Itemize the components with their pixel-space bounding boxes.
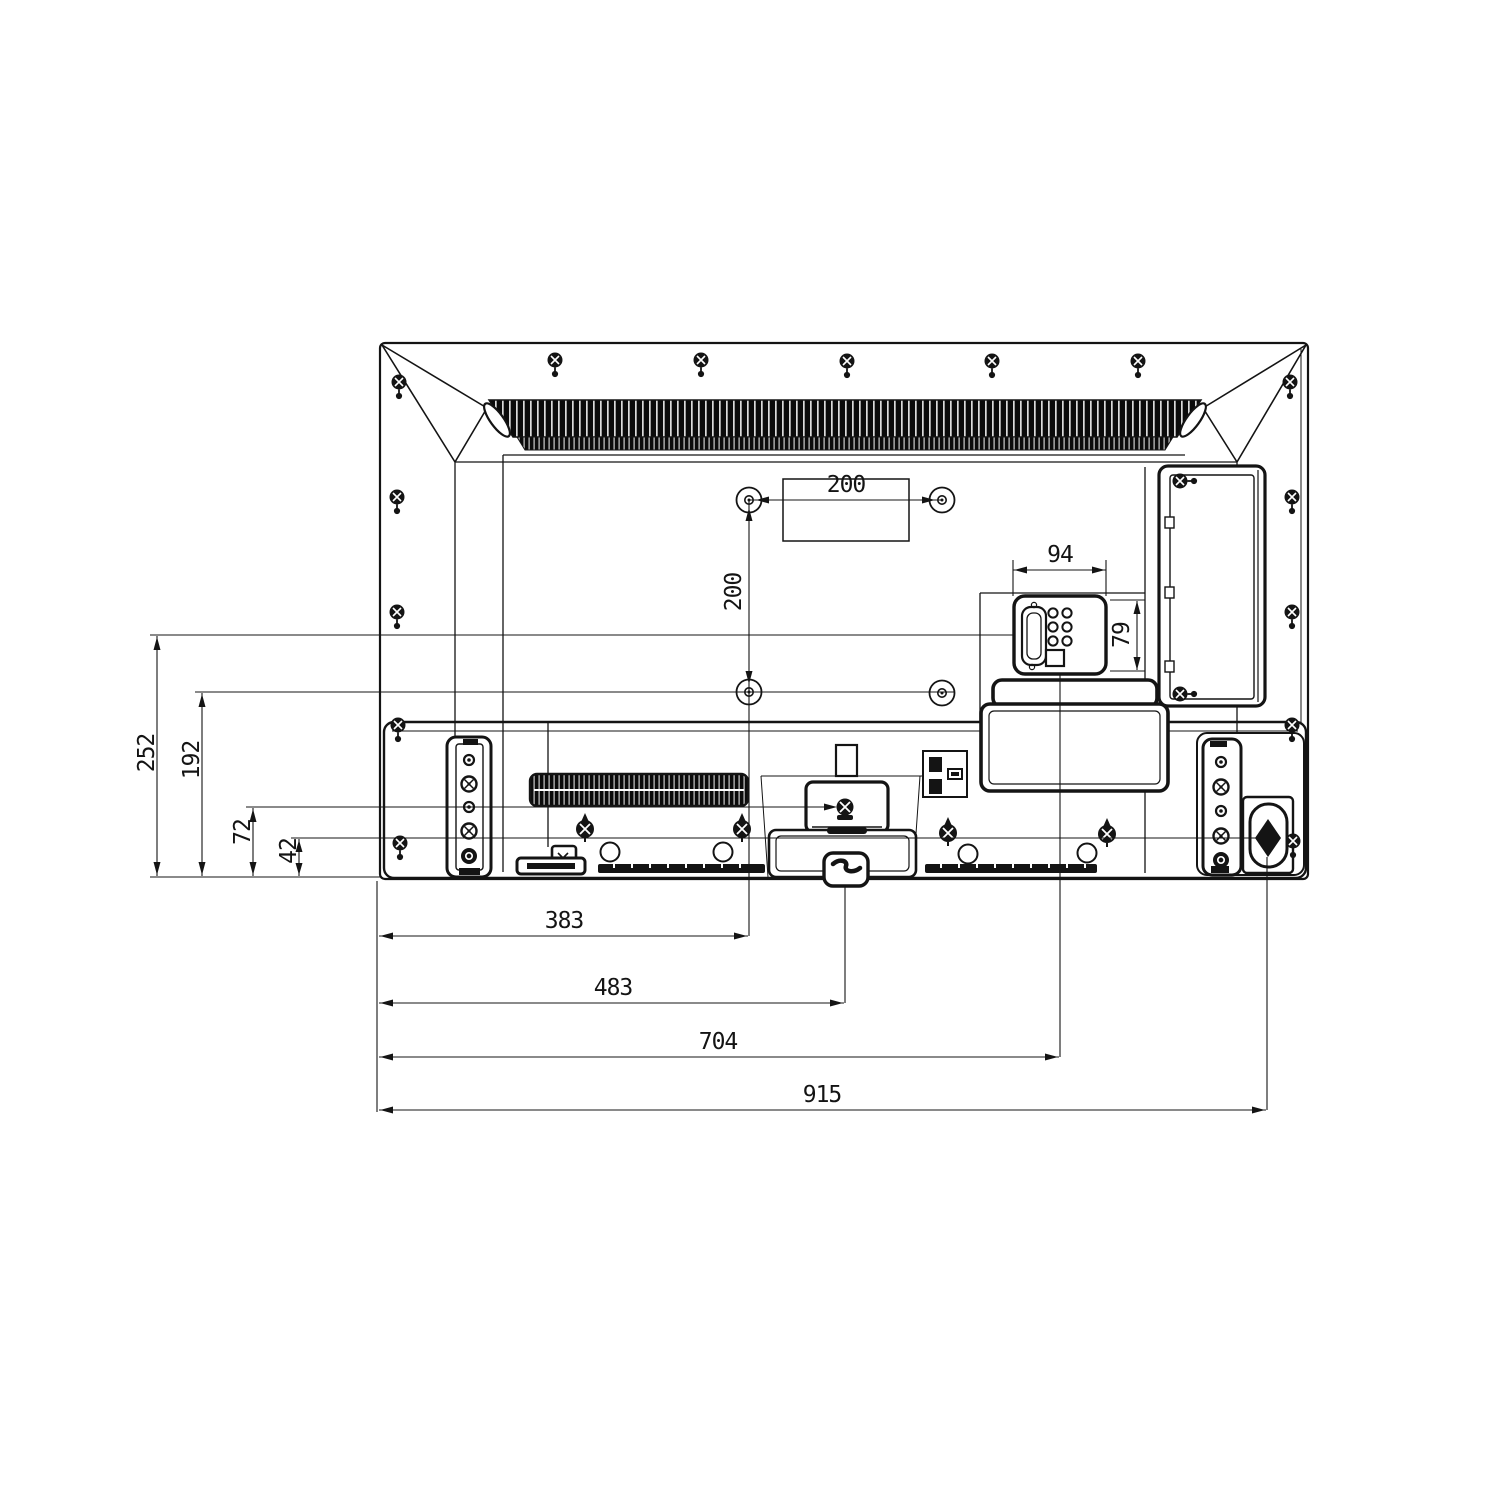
usb-panel xyxy=(923,751,967,797)
drawing-sheet: 200 200 94 79 252 192 72 42 383 483 704 … xyxy=(0,0,1500,1500)
dim-label-192: 192 xyxy=(179,741,205,780)
av-jack-icon xyxy=(461,848,477,864)
tv-rear-diagram: 200 200 94 79 252 192 72 42 383 483 704 … xyxy=(0,0,1500,1500)
dim-label-383: 383 xyxy=(545,908,584,934)
dim-label-72: 72 xyxy=(230,819,256,845)
power-inlet xyxy=(1243,797,1293,873)
av-jack-icon xyxy=(1214,829,1229,844)
dim-label-42: 42 xyxy=(276,838,302,864)
dim-label-252: 252 xyxy=(134,734,160,773)
dim-label-94: 94 xyxy=(1047,542,1073,568)
dim-label-200v: 200 xyxy=(721,573,747,612)
dim-label-915: 915 xyxy=(803,1082,842,1108)
service-door xyxy=(1159,466,1265,706)
dim-label-79: 79 xyxy=(1109,622,1135,648)
rear-av-panel xyxy=(1014,596,1106,674)
dim-label-704: 704 xyxy=(699,1029,738,1055)
av-jack-icon xyxy=(464,755,474,765)
speaker-box xyxy=(981,680,1168,791)
band-vent xyxy=(530,774,748,806)
av-jack-icon xyxy=(1216,806,1226,816)
av-jack-icon xyxy=(1213,852,1229,868)
square-port-icon xyxy=(1046,650,1064,666)
av-jack-icon xyxy=(1214,780,1229,795)
dim-label-200h: 200 xyxy=(827,472,866,498)
top-vent xyxy=(480,400,1210,450)
dim-label-483: 483 xyxy=(594,975,633,1001)
av-jack-icon xyxy=(462,777,477,792)
av-jack-icon xyxy=(1216,757,1226,767)
vga-connector-icon xyxy=(1022,607,1046,665)
av-jack-icon xyxy=(462,824,477,839)
